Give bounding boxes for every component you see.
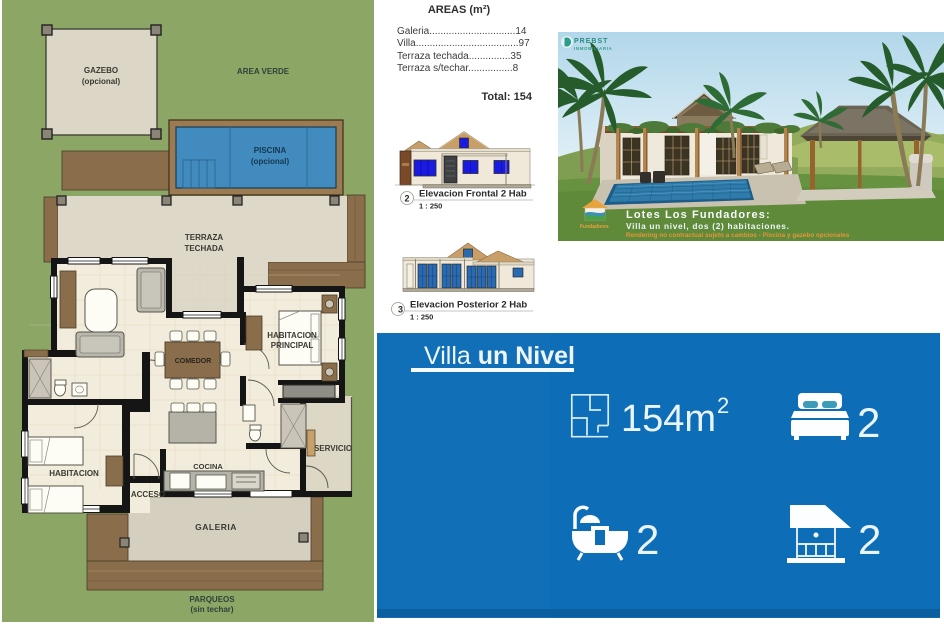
svg-text:Elevacion Frontal 2 Hab: Elevacion Frontal 2 Hab bbox=[419, 189, 527, 200]
svg-text:Fundadores: Fundadores bbox=[580, 224, 609, 230]
svg-text:GAZEBO: GAZEBO bbox=[84, 66, 118, 75]
svg-text:GALERIA: GALERIA bbox=[195, 522, 237, 532]
svg-text:154m: 154m bbox=[621, 398, 716, 440]
svg-text:ACCESO: ACCESO bbox=[131, 490, 165, 499]
svg-text:(opcional): (opcional) bbox=[251, 157, 290, 166]
svg-text:2: 2 bbox=[717, 393, 729, 418]
svg-text:PARQUEOS: PARQUEOS bbox=[189, 595, 235, 604]
svg-text:(opcional): (opcional) bbox=[82, 77, 121, 86]
svg-text:1 : 250: 1 : 250 bbox=[419, 202, 442, 211]
svg-text:PISCINA: PISCINA bbox=[254, 146, 287, 155]
svg-text:PREBST: PREBST bbox=[574, 38, 608, 45]
svg-text:Elevacion Posterior 2 Hab: Elevacion Posterior 2 Hab bbox=[410, 300, 527, 311]
svg-text:2: 2 bbox=[857, 399, 880, 446]
svg-text:2: 2 bbox=[858, 516, 881, 563]
svg-text:Villa un nivel, dos (2) habita: Villa un nivel, dos (2) habitaciones. bbox=[626, 221, 790, 231]
svg-text:2: 2 bbox=[636, 516, 659, 563]
svg-text:COCINA: COCINA bbox=[193, 462, 223, 471]
svg-text:2: 2 bbox=[404, 194, 409, 204]
svg-text:1 : 250: 1 : 250 bbox=[410, 313, 433, 322]
svg-text:Lotes Los Fundadores:: Lotes Los Fundadores: bbox=[626, 209, 771, 221]
svg-text:SERVICIO: SERVICIO bbox=[314, 444, 352, 453]
svg-text:TECHADA: TECHADA bbox=[184, 244, 223, 253]
svg-text:HABITACION: HABITACION bbox=[267, 331, 317, 340]
svg-text:Villa un Nivel: Villa un Nivel bbox=[424, 342, 575, 370]
svg-text:PRINCIPAL: PRINCIPAL bbox=[271, 341, 314, 350]
svg-text:HABITACION: HABITACION bbox=[49, 469, 99, 478]
svg-text:INMOBILIARIA: INMOBILIARIA bbox=[574, 46, 613, 51]
svg-text:COMEDOR: COMEDOR bbox=[175, 358, 212, 365]
svg-text:AREA VERDE: AREA VERDE bbox=[237, 67, 290, 76]
svg-text:3: 3 bbox=[398, 305, 403, 315]
svg-text:Rendering no contractual sujet: Rendering no contractual sujeto a cambio… bbox=[626, 232, 850, 239]
svg-text:TERRAZA: TERRAZA bbox=[185, 233, 223, 242]
svg-text:(sin techar): (sin techar) bbox=[190, 605, 233, 614]
